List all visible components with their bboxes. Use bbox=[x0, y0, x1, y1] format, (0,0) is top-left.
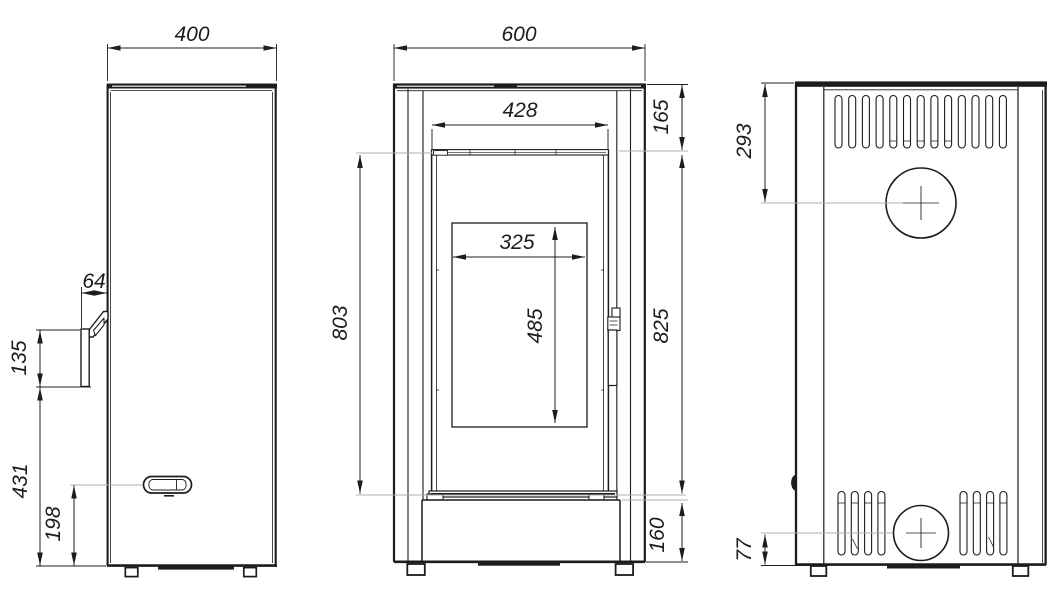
dim-label-base-height: 160 bbox=[646, 517, 669, 552]
vent-slot bbox=[862, 96, 869, 149]
side-foot-right bbox=[244, 568, 256, 577]
dim-base-height: 160 bbox=[622, 500, 688, 562]
front-base bbox=[422, 500, 620, 562]
handle-grip bbox=[81, 329, 89, 387]
vent-slot bbox=[851, 492, 858, 556]
side-body-outline bbox=[108, 84, 276, 566]
door-top-hinge bbox=[434, 151, 448, 156]
vent-slot bbox=[958, 96, 965, 149]
stove-three-view-drawing: 400 64 135 431 198 bbox=[0, 0, 1064, 598]
side-view: 400 64 135 431 198 bbox=[8, 23, 277, 577]
dim-label-handle-length: 135 bbox=[8, 340, 31, 375]
dim-label-glass-width: 325 bbox=[499, 231, 534, 254]
dim-label-door-height: 803 bbox=[329, 305, 352, 340]
vent-slot bbox=[972, 96, 979, 149]
dim-side-depth: 400 bbox=[108, 23, 277, 81]
dim-label-handle-to-floor: 431 bbox=[9, 463, 32, 498]
dim-door-zone: 825 bbox=[650, 155, 682, 494]
dim-label-outlet-from-floor: 77 bbox=[733, 537, 756, 562]
vent-slot bbox=[865, 492, 872, 556]
front-bottom-recess bbox=[478, 561, 560, 566]
side-bottom-recess bbox=[158, 565, 234, 570]
dim-ext-lines bbox=[394, 44, 645, 81]
handle-latch-top bbox=[612, 308, 620, 318]
rear-body bbox=[791, 81, 1047, 576]
dim-knob-height: 198 bbox=[42, 485, 143, 566]
vent-slot bbox=[999, 96, 1006, 149]
vent-slot bbox=[878, 492, 885, 556]
rear-foot-right bbox=[1013, 566, 1029, 576]
vent-slot bbox=[904, 96, 911, 149]
rear-foot-left bbox=[811, 566, 827, 576]
vent-slot bbox=[876, 96, 883, 149]
rear-view: 293 77 bbox=[733, 81, 1047, 576]
knob-inner bbox=[149, 480, 186, 491]
vent-slot bbox=[960, 492, 967, 556]
rear-top-plate bbox=[795, 81, 1047, 86]
dim-label-flue-from-top: 293 bbox=[733, 123, 756, 159]
vent-slot bbox=[917, 96, 924, 149]
dim-handle-length: 135 bbox=[8, 330, 91, 387]
side-body bbox=[107, 84, 277, 577]
vent-slot bbox=[1000, 492, 1007, 556]
dim-label-knob-height: 198 bbox=[42, 506, 65, 541]
front-foot-right bbox=[616, 564, 634, 575]
vent-slot bbox=[945, 96, 952, 149]
vent-slot bbox=[973, 492, 980, 556]
side-foot-left bbox=[125, 568, 138, 577]
dim-ext-lines bbox=[432, 129, 608, 149]
side-body-inner-lines bbox=[111, 91, 273, 563]
base-outline bbox=[422, 500, 620, 562]
door-handle-side bbox=[81, 312, 108, 387]
technical-drawing: 400 64 135 431 198 bbox=[0, 0, 1064, 598]
dim-label-width: 600 bbox=[501, 23, 536, 46]
dim-door-width: 428 bbox=[432, 99, 608, 149]
ash-drawer-knob bbox=[144, 477, 192, 496]
dim-top-to-door: 165 bbox=[619, 85, 688, 152]
vent-slot bbox=[838, 492, 845, 556]
dim-label-door-zone: 825 bbox=[650, 308, 673, 343]
dim-label-top-to-door: 165 bbox=[650, 99, 673, 134]
rear-bottom-recess bbox=[887, 564, 960, 569]
vent-slot bbox=[890, 96, 897, 149]
rear-hinge-pin bbox=[791, 475, 796, 492]
vent-slot bbox=[931, 96, 938, 149]
dim-label-glass-height: 485 bbox=[524, 308, 547, 343]
dim-front-width: 600 bbox=[394, 23, 645, 81]
dim-label-depth: 400 bbox=[174, 23, 209, 46]
handle-bar-front bbox=[608, 330, 617, 386]
rear-body-outline bbox=[796, 82, 1046, 565]
dim-label-door-width: 428 bbox=[502, 99, 537, 122]
dim-label-handle-offset: 64 bbox=[82, 270, 105, 293]
air-outlet-bottom bbox=[894, 506, 949, 561]
front-view: 600 428 325 485 803 165 825 bbox=[329, 23, 688, 575]
vent-slot bbox=[986, 96, 993, 149]
vent-slot bbox=[835, 96, 842, 149]
handle-latch-body bbox=[608, 317, 620, 331]
door-handle-front bbox=[608, 308, 620, 386]
vent-slot bbox=[849, 96, 856, 149]
top-vent-slots bbox=[835, 96, 1006, 149]
dim-ext-lines bbox=[108, 44, 277, 81]
front-foot-left bbox=[407, 564, 425, 575]
